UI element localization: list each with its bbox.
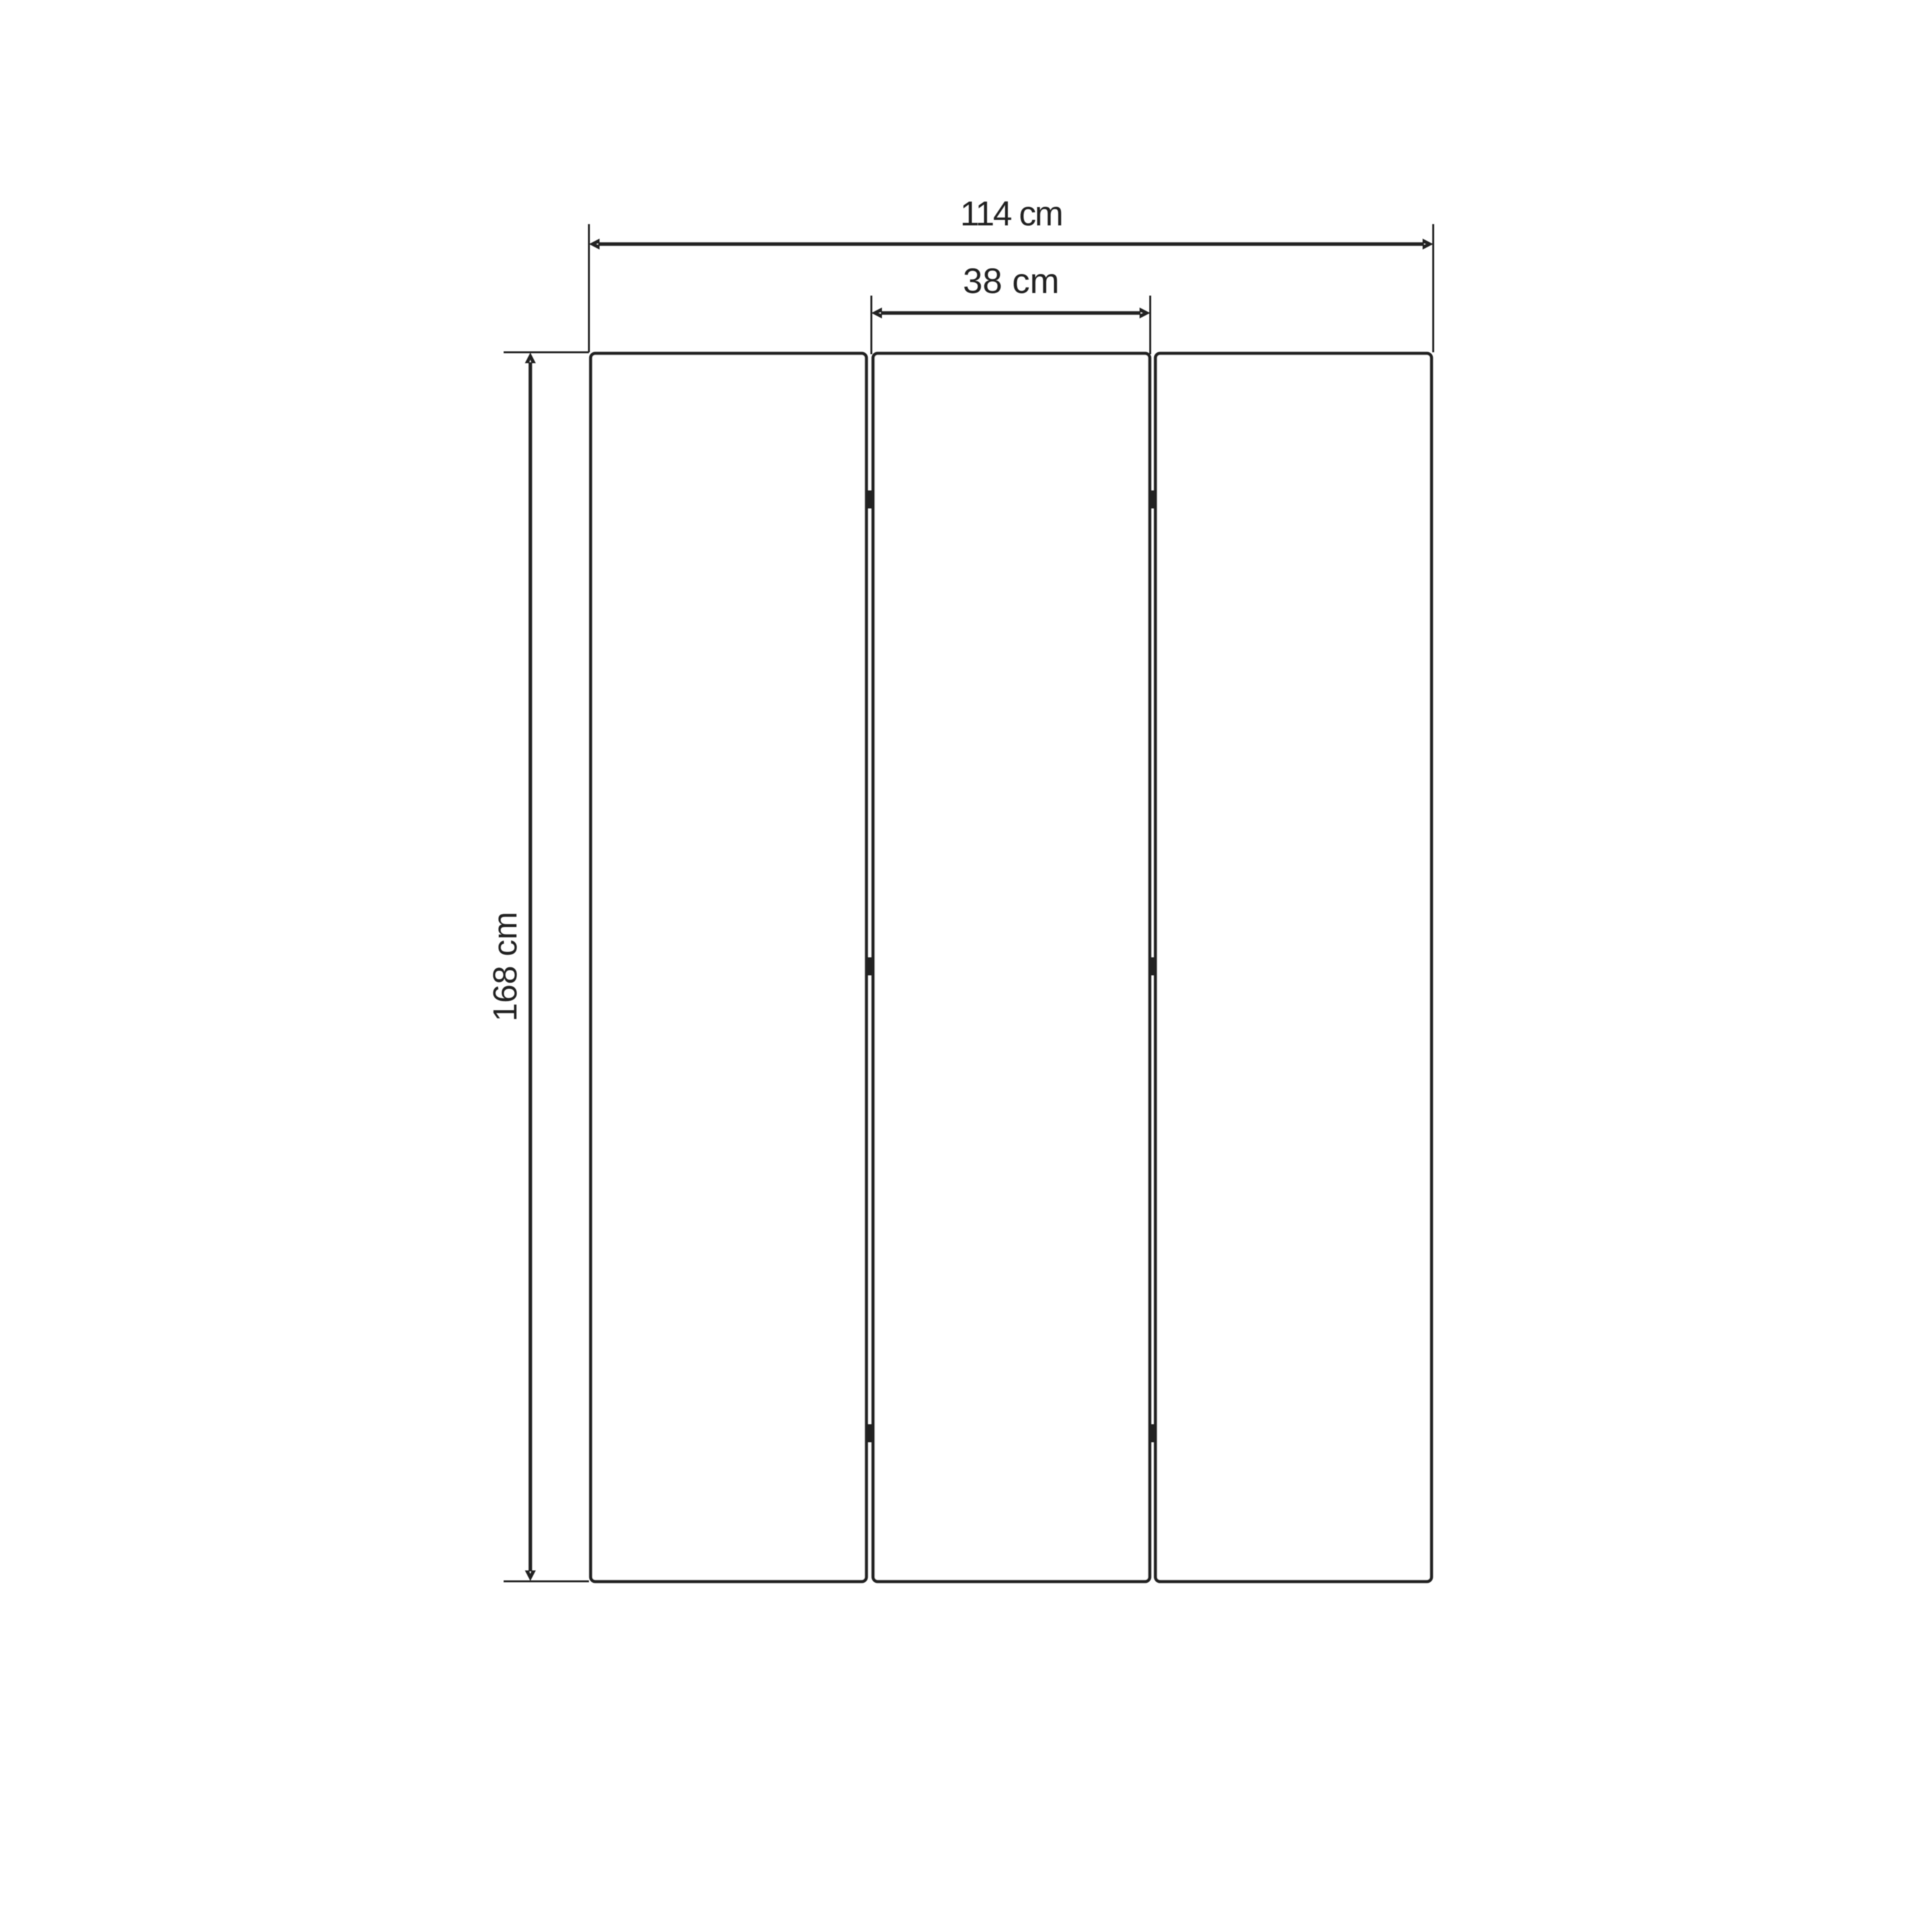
svg-text:168 cm: 168 cm [487, 912, 524, 1022]
svg-text:114 cm: 114 cm [960, 195, 1062, 233]
svg-text:38 cm: 38 cm [963, 261, 1059, 301]
